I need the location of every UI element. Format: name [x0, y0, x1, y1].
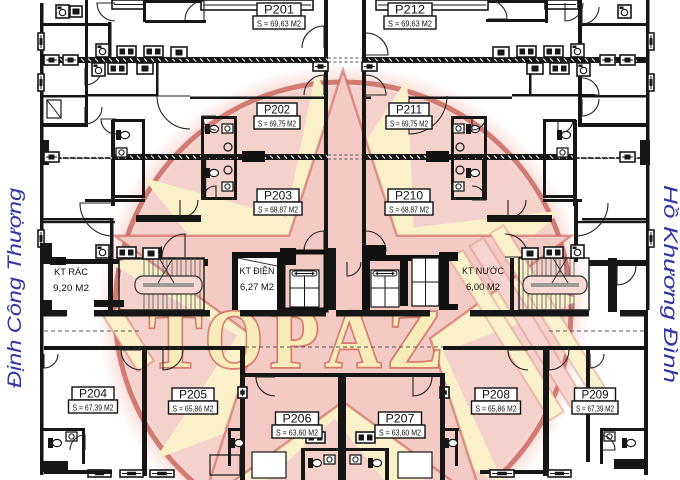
- svg-text:KT ĐIỆN: KT ĐIỆN: [240, 266, 275, 277]
- svg-text:6,27 M2: 6,27 M2: [240, 282, 274, 293]
- svg-text:9,20 M2: 9,20 M2: [53, 283, 89, 294]
- svg-text:S = 67,39 M2: S = 67,39 M2: [576, 404, 614, 414]
- svg-text:P205: P205: [179, 388, 207, 402]
- svg-text:S = 69,75 M2: S = 69,75 M2: [390, 119, 428, 129]
- svg-text:S = 68,87 M2: S = 68,87 M2: [258, 205, 298, 215]
- svg-text:S = 69,63 M2: S = 69,63 M2: [257, 19, 301, 29]
- svg-text:P201: P201: [264, 3, 294, 17]
- svg-text:S = 68,87 M2: S = 68,87 M2: [389, 205, 429, 215]
- svg-text:KT.TM: KT.TM: [440, 268, 446, 290]
- svg-text:KT NƯỚC: KT NƯỚC: [462, 266, 504, 277]
- svg-text:P203: P203: [264, 189, 292, 203]
- svg-text:P206: P206: [283, 412, 312, 426]
- svg-text:S = 63,60 M2: S = 63,60 M2: [276, 428, 318, 438]
- svg-text:P202: P202: [264, 103, 290, 117]
- svg-text:Định Công Thượng: Định Công Thượng: [5, 187, 26, 388]
- svg-text:S = 67,39 M2: S = 67,39 M2: [73, 403, 114, 413]
- svg-text:S = 69,75 M2: S = 69,75 M2: [258, 119, 296, 129]
- svg-text:S = 69,63 M2: S = 69,63 M2: [388, 19, 432, 29]
- svg-text:P212: P212: [395, 3, 425, 17]
- svg-text:Hồ Khương Đình: Hồ Khương Đình: [659, 185, 680, 383]
- svg-text:P208: P208: [482, 388, 510, 402]
- svg-text:S = 65,86 M2: S = 65,86 M2: [476, 404, 517, 414]
- svg-text:6,00 M2: 6,00 M2: [466, 282, 500, 293]
- svg-text:P204: P204: [79, 387, 107, 401]
- svg-text:P211: P211: [396, 103, 422, 117]
- svg-text:S = 65,86 M2: S = 65,86 M2: [173, 404, 214, 414]
- svg-text:T: T: [149, 293, 202, 386]
- svg-text:P209: P209: [582, 388, 609, 402]
- svg-text:P210: P210: [395, 189, 423, 203]
- svg-text:S = 63,60 M2: S = 63,60 M2: [379, 428, 421, 438]
- svg-text:P207: P207: [386, 412, 415, 426]
- svg-text:KT RÁC: KT RÁC: [54, 267, 88, 278]
